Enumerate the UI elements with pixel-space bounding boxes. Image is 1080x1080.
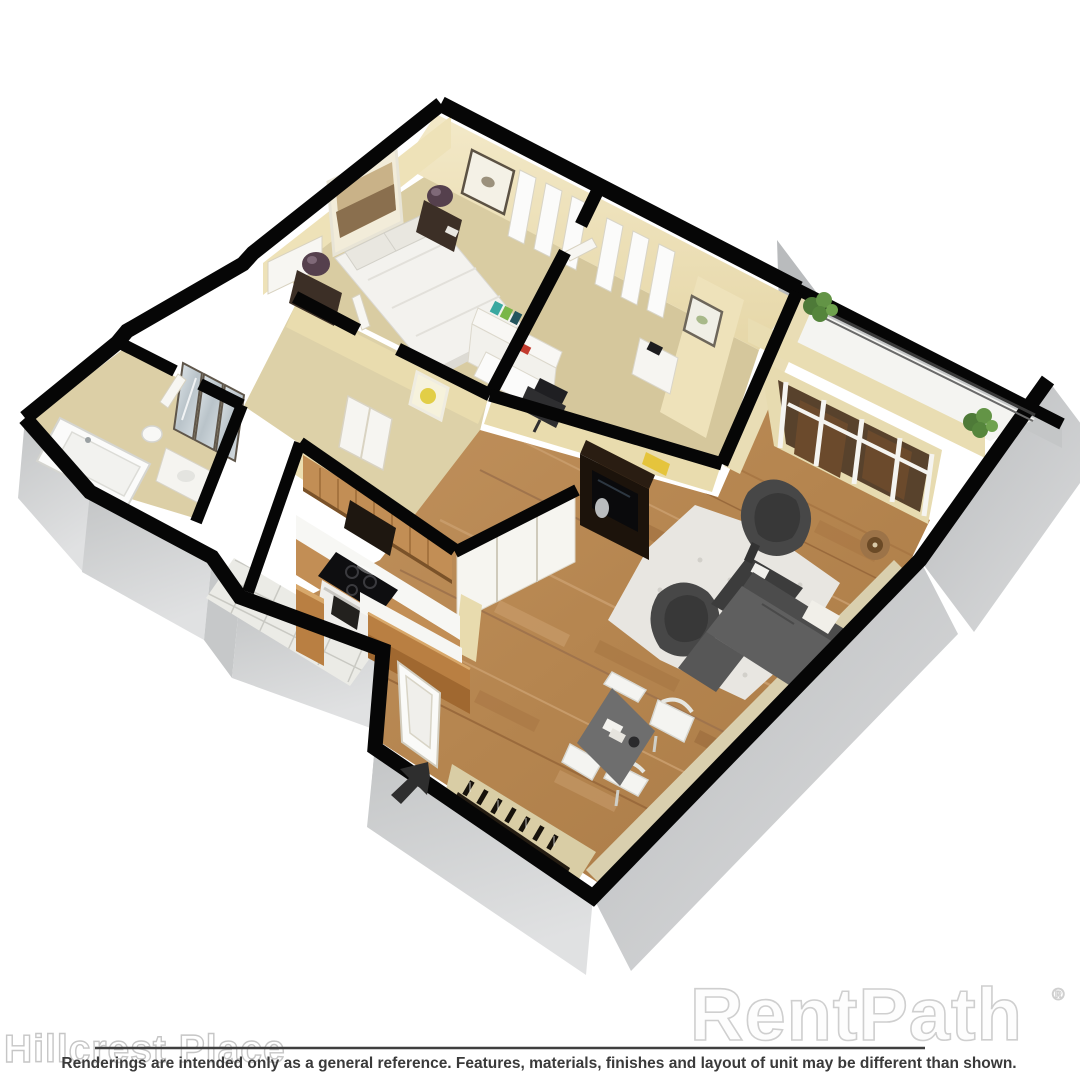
rentpath-watermark: RentPath: [690, 973, 1023, 1056]
toilet: [142, 426, 162, 442]
registered-trademark-icon: ®: [1052, 985, 1065, 1004]
tub-faucet: [85, 437, 91, 443]
floor-lamp: [860, 530, 890, 560]
table-cup: [629, 737, 640, 748]
kitchen-west-wall: [248, 443, 300, 592]
speaker: [595, 498, 609, 518]
disclaimer-text: Renderings are intended only as a genera…: [61, 1055, 1016, 1072]
floor-plan-rendering: Hillcrest Place RentPath ® Renderings ar…: [0, 0, 1080, 1080]
floor-plan-screenshot: Hillcrest Place RentPath ® Renderings ar…: [0, 0, 1080, 1080]
